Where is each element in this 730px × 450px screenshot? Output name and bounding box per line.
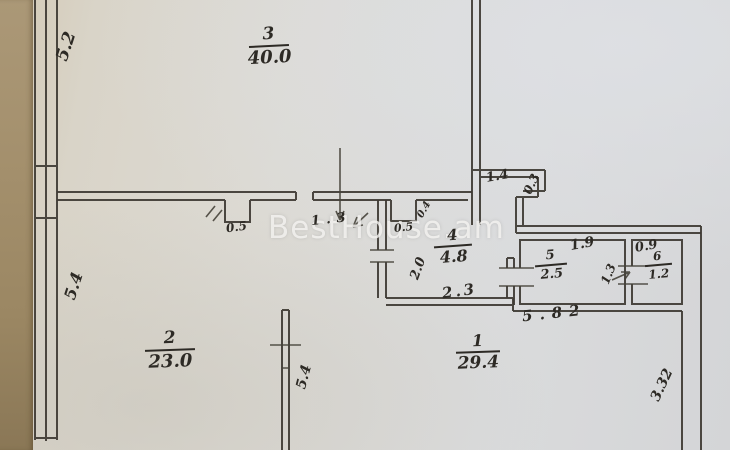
dimension-notch-length: 1.4 [485, 168, 510, 185]
room-area: 40.0 [247, 48, 292, 68]
room-2-label: 2 23.0 [139, 329, 200, 372]
room-number: 3 [262, 26, 275, 44]
dimension-wall-opening: 1.3 [310, 211, 352, 228]
room-area: 4.8 [439, 248, 468, 266]
room-number: 4 [447, 228, 458, 244]
room-5-label: 5 2.5 [531, 247, 572, 282]
room-area: 2.5 [540, 267, 564, 282]
dimension-closet-width: 0.5 [393, 221, 413, 234]
room-number: 5 [545, 249, 555, 263]
room-1-label: 1 29.4 [449, 332, 506, 373]
room-number: 2 [163, 330, 175, 347]
room-3-label: 3 40.0 [242, 25, 296, 69]
dimension-room6-width: 0.9 [634, 238, 659, 255]
room-number: 1 [472, 333, 484, 349]
room-area: 29.4 [457, 354, 499, 372]
dimension-room5-width: 1.9 [569, 235, 595, 253]
tick-marks [206, 206, 222, 221]
floor-plan-photo: BestHouse.am 3 40.0 2 23.0 1 29.4 4 4.8 … [0, 0, 730, 450]
room-area: 1.2 [648, 267, 670, 281]
room-area: 23.0 [148, 352, 192, 372]
dimension-niche-width: 0.5 [225, 220, 247, 235]
room-4-label: 4 4.8 [429, 226, 477, 266]
